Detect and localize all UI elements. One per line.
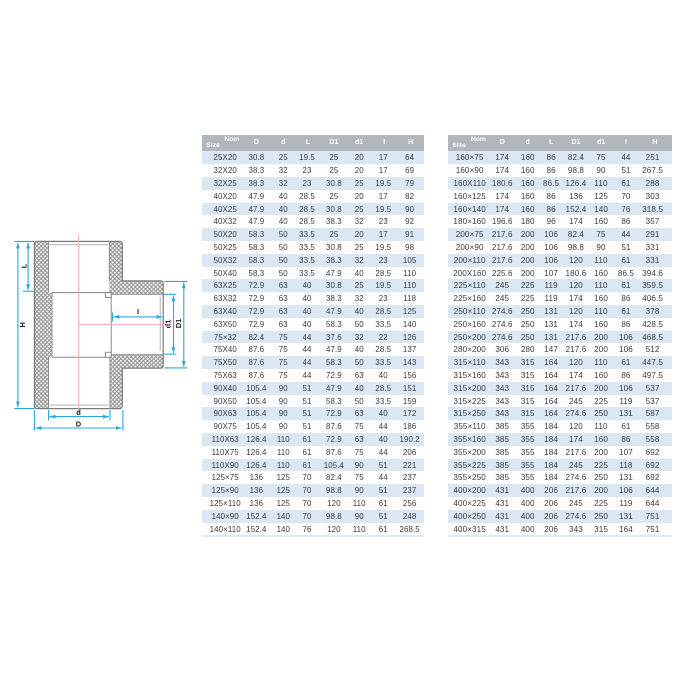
svg-text:L: L <box>20 263 29 268</box>
svg-text:D1: D1 <box>174 319 183 329</box>
svg-text:d: d <box>76 408 81 417</box>
svg-text:I: I <box>137 307 139 316</box>
svg-text:d1: d1 <box>163 320 172 329</box>
svg-text:H: H <box>18 322 27 327</box>
svg-text:D: D <box>76 420 82 429</box>
